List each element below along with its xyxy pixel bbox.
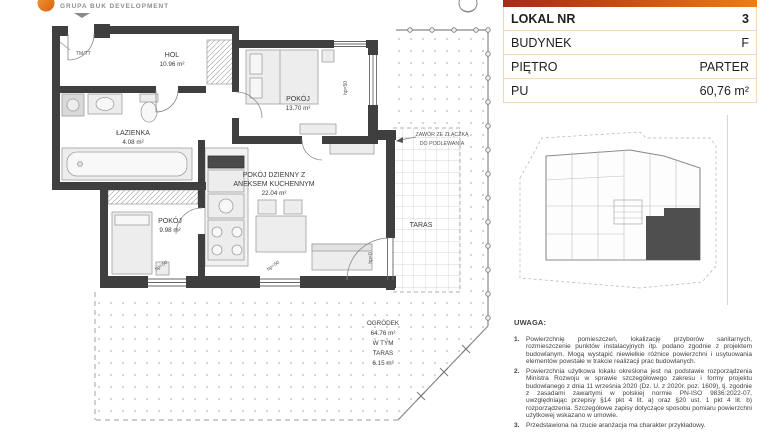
ogrodek-area: 64.76 m² [371,330,396,337]
key-plan-svg [512,118,740,306]
living-name-line1: POKÓJ DZIENNY Z [243,170,306,179]
table-row-lokal: LOKAL NR 3 [504,7,756,30]
bed-top-room [246,50,336,134]
note-number: 2. [514,368,526,419]
hol-area: 10.96 m² [160,61,185,68]
room-label-lazienka: ŁAZIENKA 4.08 m² [116,130,150,146]
valve-line1: ZAWÓR ZE ZŁĄCZKĄ [415,131,469,138]
note-text: Powierzchnia użytkowa lokalu określona j… [526,368,752,419]
compass-icon [459,0,477,12]
notes-section: UWAGA: 1. Powierzchnię pomieszczeń, loka… [514,318,752,433]
logo-mark-icon [38,0,55,12]
entry-marker-icon [74,13,90,18]
living-area: 22.04 m² [262,190,287,197]
unit-info-table: LOKAL NR 3 BUDYNEK F PIĘTRO PARTER PU 60… [503,7,757,103]
ogrodek-name: OGRÓDEK [367,318,400,327]
note-number: 3. [514,422,526,429]
bathroom-fixtures [62,94,192,180]
valve-line2: DO PODLEWANIA [420,141,465,147]
accent-bar [503,0,757,7]
entry-door-label: TM/TT [76,51,91,57]
pietro-value: PARTER [699,60,749,74]
lokal-label: LOKAL NR [511,12,575,26]
floor-plan-svg: GRUPA BUK DEVELOPMENT [0,0,500,428]
notes-heading: UWAGA: [514,318,752,327]
pu-label: PU [511,84,528,98]
note-item-2: 2. Powierzchnia użytkowa lokalu określon… [514,368,752,419]
room-label-hol: HOL 10.96 m² [160,52,185,68]
brand-logo: GRUPA BUK DEVELOPMENT [38,0,170,18]
hol-name: HOL [165,52,180,59]
lazienka-name: ŁAZIENKA [116,130,150,137]
ogrodek-sub1: W TYM [373,340,394,347]
budynek-value: F [741,36,749,50]
building-key-plan [512,118,740,306]
note-text: Przedstawiona na rzucie aranżacja ma cha… [526,422,752,429]
ogrodek-sub2: TARAS [373,350,394,357]
pokoj-bottom-name: POKÓJ [158,216,182,225]
pu-value: 60,76 m² [700,84,749,98]
kitchen-counter [205,148,248,266]
pokoj-top-name: POKÓJ [286,94,310,103]
budynek-label: BUDYNEK [511,36,571,50]
table-row-pietro: PIĘTRO PARTER [504,54,756,78]
logo-text: GRUPA BUK DEVELOPMENT [60,3,169,10]
info-panel: LOKAL NR 3 BUDYNEK F PIĘTRO PARTER PU 60… [503,0,757,428]
living-name-line2: ANEKSEM KUCHENNYM [233,181,314,188]
window-sill-label-3: hp=50 [343,81,349,95]
sofa [312,244,372,270]
note-item-1: 1. Powierzchnię pomieszczeń, lokalizację… [514,336,752,365]
lazienka-area: 4.08 m² [122,139,143,146]
ogrodek-sub3: 6.15 m² [372,360,393,367]
dining-set [256,200,306,252]
room-label-pokoj-bottom: POKÓJ 9.98 m² [158,216,182,234]
note-number: 1. [514,336,526,365]
window-sill-label-2: hp=50 [266,260,281,273]
lokal-value: 3 [742,12,749,26]
taras-name: TARAS [410,222,433,229]
table-row-pu: PU 60,76 m² [504,78,756,102]
pokoj-top-area: 13.70 m² [286,105,311,112]
terrace [393,128,460,292]
pokoj-bottom-area: 9.98 m² [159,227,180,234]
pietro-label: PIĘTRO [511,60,558,74]
door-sill-label: hp=0 [368,252,374,263]
note-text: Powierzchnię pomieszczeń, lokalizację pr… [526,336,752,365]
floor-plan-area: GRUPA BUK DEVELOPMENT [0,0,500,428]
table-row-budynek: BUDYNEK F [504,30,756,54]
room-label-taras: TARAS [410,222,433,229]
note-item-3: 3. Przedstawiona na rzucie aranżacja ma … [514,422,752,429]
